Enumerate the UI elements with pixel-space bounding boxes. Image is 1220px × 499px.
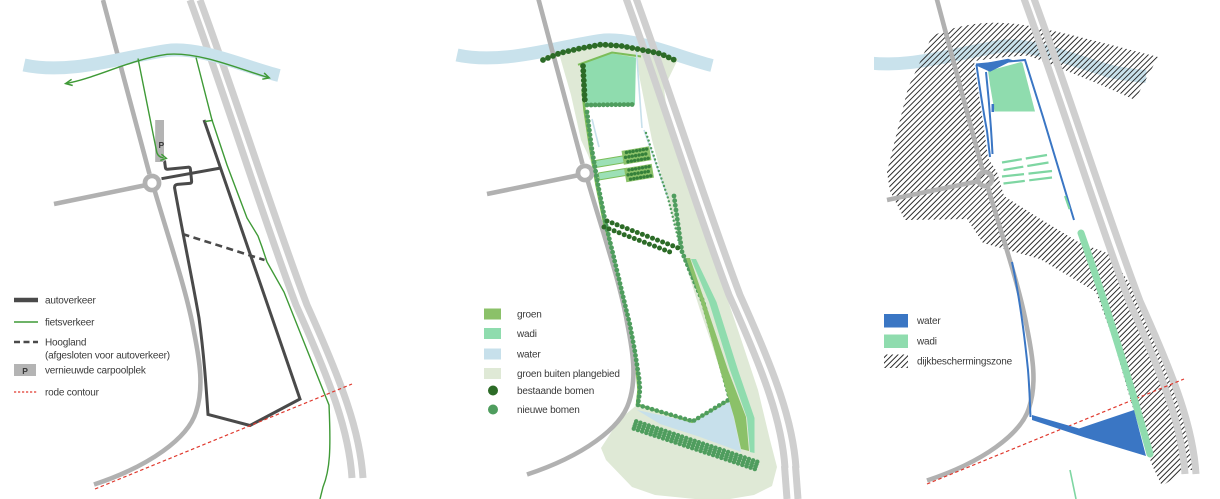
svg-text:fietsverkeer: fietsverkeer <box>45 318 95 329</box>
svg-text:water: water <box>916 316 941 327</box>
svg-text:P: P <box>159 140 165 150</box>
svg-text:groen buiten plangebied: groen buiten plangebied <box>517 369 620 380</box>
svg-text:water: water <box>516 350 541 361</box>
svg-text:autoverkeer: autoverkeer <box>45 296 96 307</box>
svg-text:rode contour: rode contour <box>45 388 100 399</box>
svg-text:P: P <box>22 366 28 376</box>
svg-text:nieuwe bomen: nieuwe bomen <box>517 405 580 416</box>
svg-text:(afgesloten voor autoverkeer): (afgesloten voor autoverkeer) <box>45 351 170 362</box>
svg-text:wadi: wadi <box>516 329 537 340</box>
svg-text:vernieuwde carpoolplek: vernieuwde carpoolplek <box>45 366 147 377</box>
svg-text:wadi: wadi <box>916 337 937 348</box>
svg-text:bestaande bomen: bestaande bomen <box>517 386 594 397</box>
svg-text:dijkbeschermingszone: dijkbeschermingszone <box>917 357 1013 368</box>
svg-text:Hoogland: Hoogland <box>45 338 86 349</box>
svg-text:groen: groen <box>517 310 542 321</box>
